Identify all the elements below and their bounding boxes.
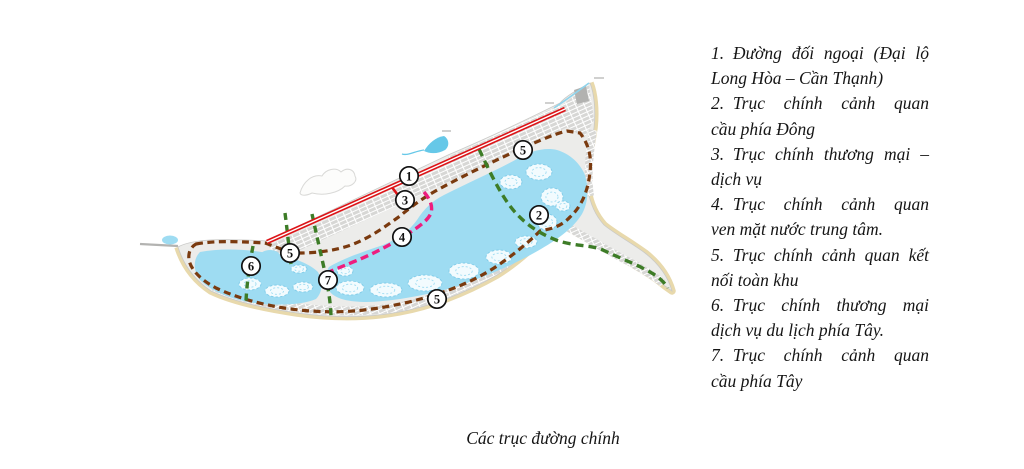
legend-line: cầu phía Đông (711, 117, 929, 142)
legend-line: ven mặt nước trung tâm. (711, 217, 929, 242)
coral-island (515, 236, 537, 248)
legend-line: 7. Trục chính cảnh quan (711, 343, 929, 368)
map-label-smudge (594, 77, 604, 79)
legend-item: 7. Trục chính cảnh quan cầu phía Tây (711, 343, 929, 393)
legend-item: 6. Trục chính thương mại dịch vụ du lịch… (711, 293, 929, 343)
route-marker-number: 5 (287, 247, 293, 261)
legend-item: 1. Đường đối ngoại (Đại lộ Long Hòa – Cầ… (711, 41, 929, 91)
route-marker-number: 6 (248, 260, 254, 274)
coral-island (336, 281, 364, 295)
route-marker-2: 2 (530, 206, 548, 224)
route-marker-number: 1 (406, 170, 412, 184)
route-marker-5: 5 (514, 141, 532, 159)
legend-line: cầu phía Tây (711, 369, 929, 394)
route-marker-number: 3 (402, 194, 408, 208)
north-pond (424, 136, 448, 153)
coral-island (239, 278, 261, 290)
figure: 134525675 1. Đường đối ngoại (Đại lộ Lon… (0, 0, 1024, 469)
route-marker-1: 1 (400, 167, 418, 185)
coral-island (370, 283, 402, 297)
route-marker-7: 7 (319, 271, 337, 289)
coral-island (500, 175, 522, 189)
route-marker-6: 6 (242, 257, 260, 275)
west-water-patch (162, 236, 178, 245)
map-label-smudge (442, 130, 451, 132)
legend-line: 6. Trục chính thương mại (711, 293, 929, 318)
route-marker-number: 5 (520, 144, 526, 158)
legend-item: 3. Trục chính thương mại – dịch vụ (711, 142, 929, 192)
legend-line: nối toàn khu (711, 268, 929, 293)
legend-list: 1. Đường đối ngoại (Đại lộ Long Hòa – Cầ… (711, 41, 929, 394)
coral-island (526, 164, 552, 180)
figure-caption: Các trục đường chính (423, 428, 663, 449)
route-marker-number: 5 (434, 293, 440, 307)
coral-island (293, 282, 313, 292)
pond-creek (402, 150, 424, 154)
legend-line: 1. Đường đối ngoại (Đại lộ (711, 41, 929, 66)
legend-line: Long Hòa – Cần Thạnh) (711, 66, 929, 91)
legend-line: dịch vụ du lịch phía Tây. (711, 318, 929, 343)
legend-item: 2. Trục chính cảnh quan cầu phía Đông (711, 91, 929, 141)
route-marker-5: 5 (281, 244, 299, 262)
legend-item: 4. Trục chính cảnh quan ven mặt nước tru… (711, 192, 929, 242)
route-marker-number: 7 (325, 274, 331, 288)
coral-island (265, 285, 289, 297)
ghost-outline (300, 169, 356, 195)
legend-line: dịch vụ (711, 167, 929, 192)
coral-island (486, 250, 512, 264)
route-marker-4: 4 (393, 228, 411, 246)
small-lake (260, 250, 280, 262)
legend-line: 5. Trục chính cảnh quan kết (711, 243, 929, 268)
coral-island (449, 263, 479, 279)
coral-island (556, 201, 570, 211)
map-label-smudge (545, 102, 554, 104)
route-marker-number: 4 (399, 231, 406, 245)
route-marker-3: 3 (396, 191, 414, 209)
legend-line: 2. Trục chính cảnh quan (711, 91, 929, 116)
blocks-east-coast (589, 130, 593, 196)
route-marker-number: 2 (536, 209, 542, 223)
legend-line: 4. Trục chính cảnh quan (711, 192, 929, 217)
legend-line: 3. Trục chính thương mại – (711, 142, 929, 167)
coral-island (408, 275, 442, 291)
legend-item: 5. Trục chính cảnh quan kết nối toàn khu (711, 243, 929, 293)
route-marker-5: 5 (428, 290, 446, 308)
coral-island (291, 265, 307, 273)
